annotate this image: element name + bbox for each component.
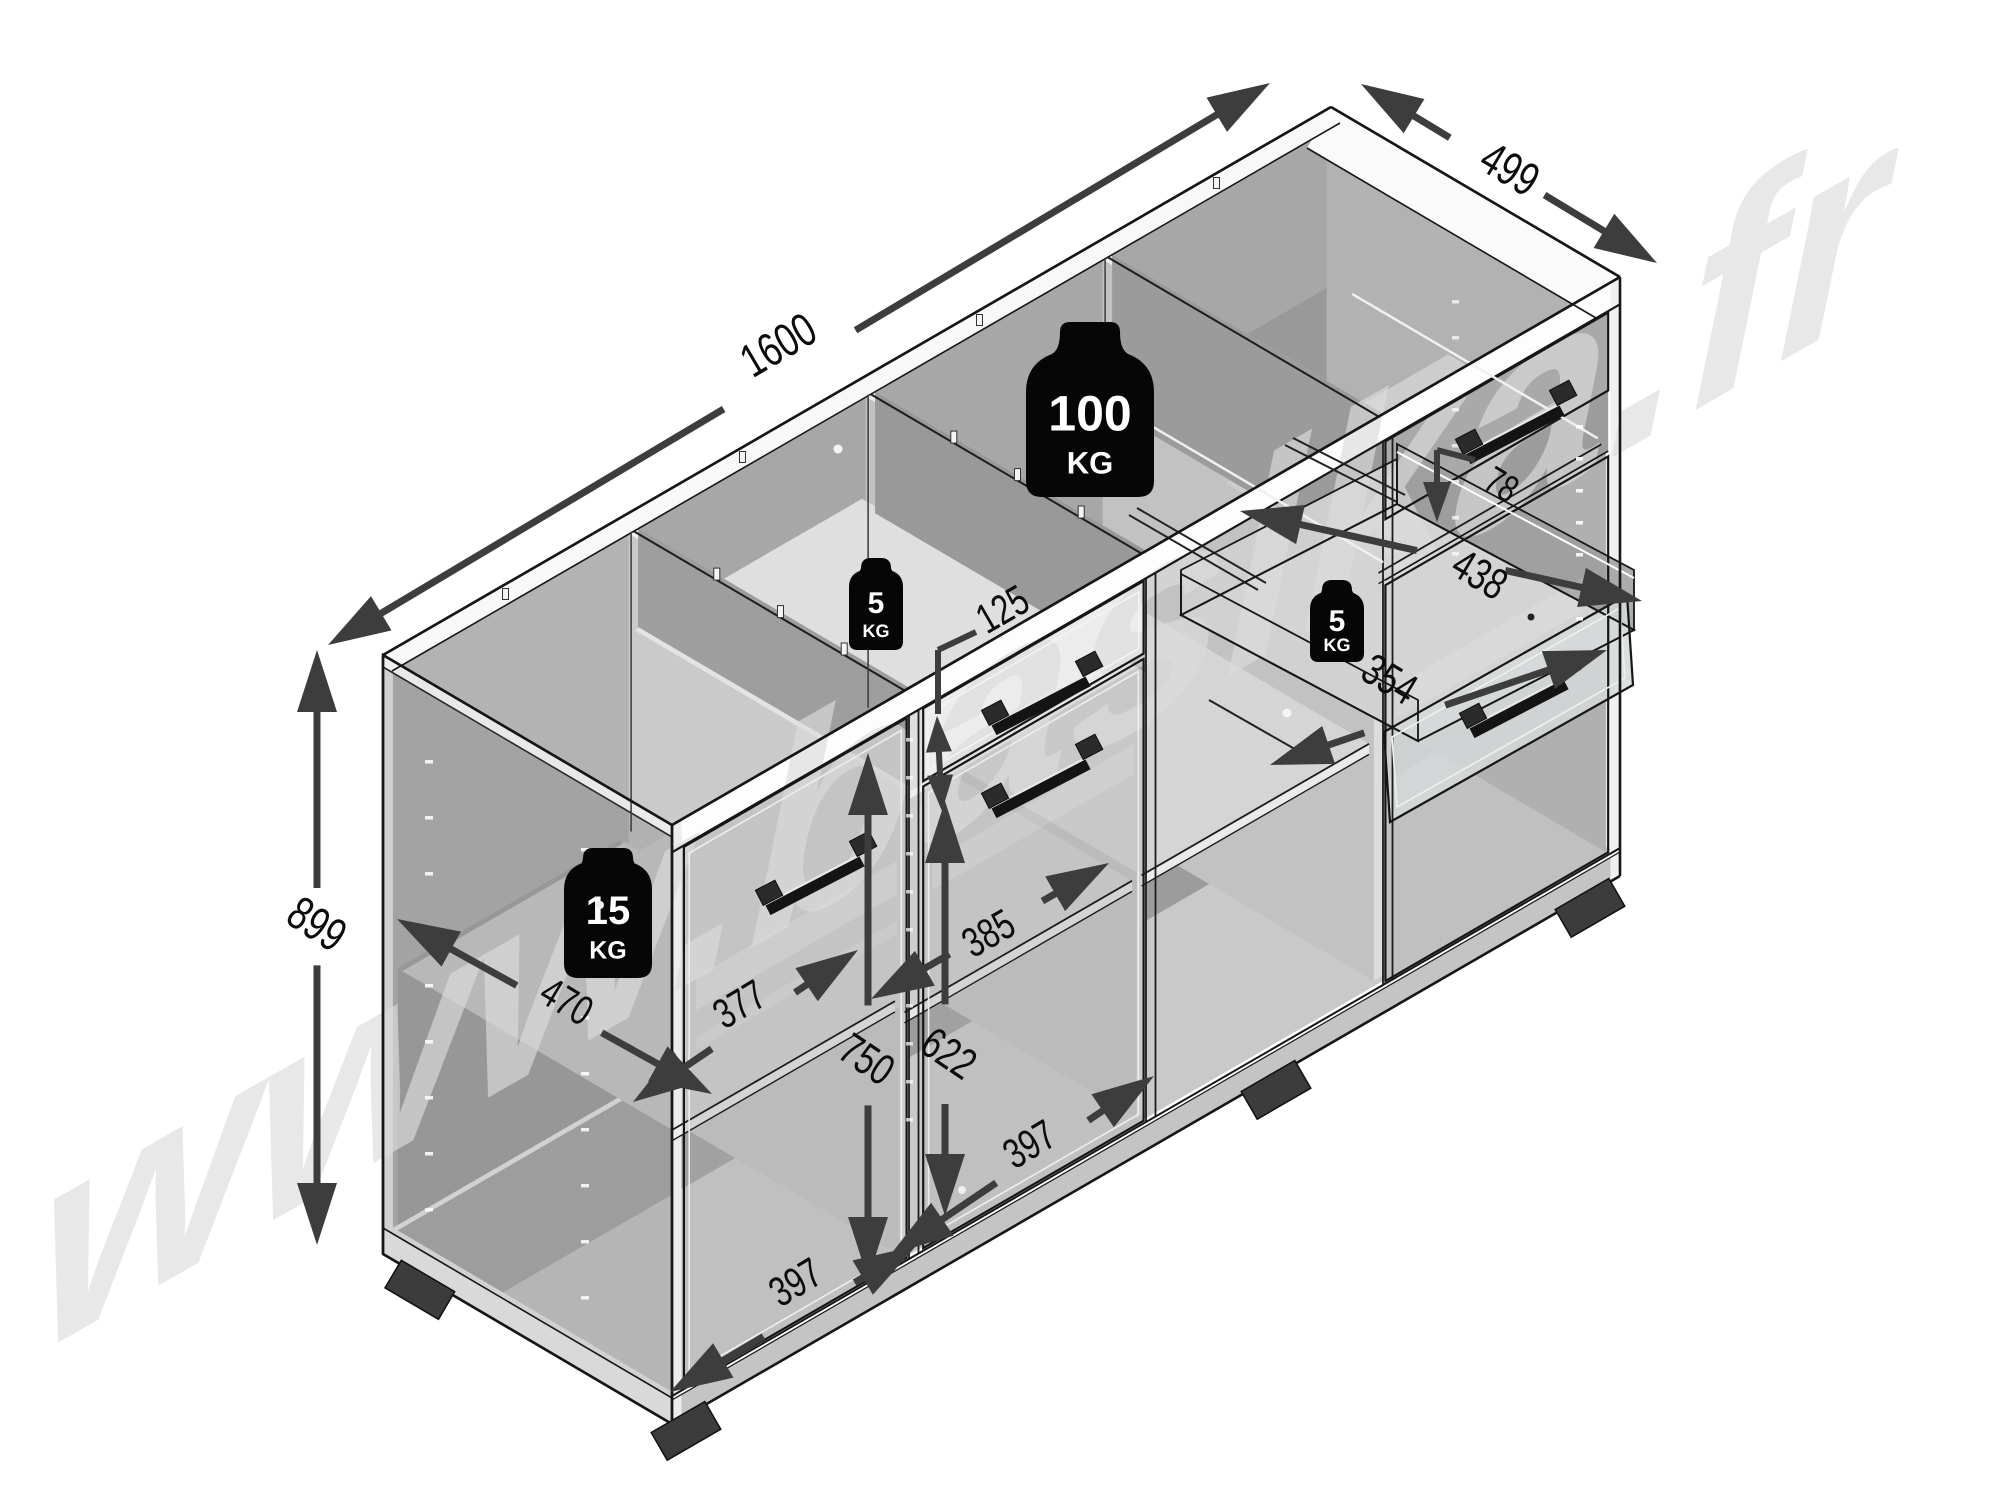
svg-text:5: 5 [1329, 605, 1346, 638]
svg-text:100: 100 [1048, 385, 1131, 441]
svg-text:KG: KG [589, 937, 627, 965]
svg-text:KG: KG [1324, 635, 1351, 655]
svg-text:KG: KG [863, 621, 890, 641]
svg-text:KG: KG [1067, 445, 1114, 480]
svg-text:15: 15 [586, 889, 631, 933]
svg-text:5: 5 [868, 587, 885, 620]
